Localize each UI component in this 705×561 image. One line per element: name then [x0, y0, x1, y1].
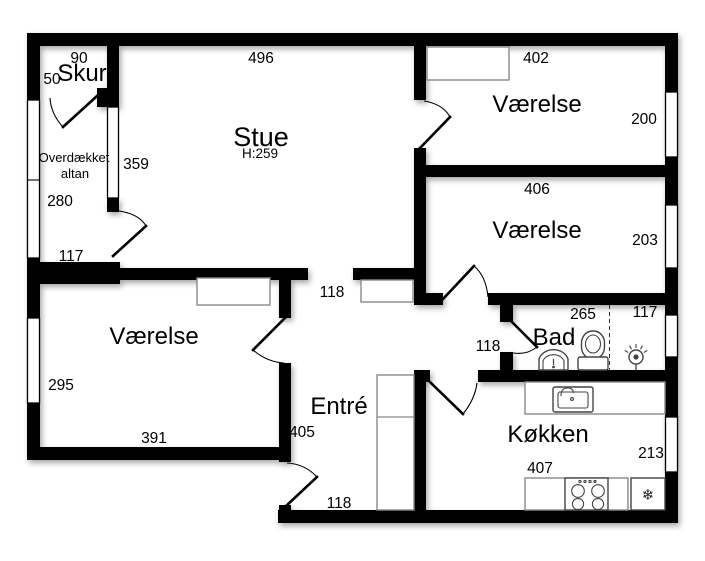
room-label-bad: Bad — [533, 324, 576, 351]
dim-skur-width: 90 — [70, 50, 88, 67]
window-bad — [666, 315, 678, 357]
kitchen-sink-icon — [553, 387, 593, 412]
kitchen-counter-top — [525, 382, 665, 414]
fridge-snowflake-icon: ❄ — [642, 486, 655, 504]
room-label-vaerelse-e: Værelse — [492, 217, 581, 244]
dim-bad-width: 265 — [570, 306, 596, 323]
room-label-entre: Entré — [310, 393, 367, 420]
window-vaerelse-ne — [666, 92, 678, 157]
dim-altan-width: 117 — [59, 248, 84, 265]
room-label-altan-line2: altan — [61, 166, 89, 181]
wardrobe-vaerelse-sw — [197, 278, 270, 305]
dim-entre-hall-width: 118 — [327, 495, 352, 512]
room-label-vaerelse-ne: Værelse — [492, 91, 581, 118]
room-label-vaerelse-sw: Værelse — [109, 323, 198, 350]
room-label-koekken: Køkken — [507, 421, 588, 448]
dim-koekken-width: 407 — [527, 460, 553, 477]
dim-vaerelse-sw-depth: 295 — [48, 377, 74, 394]
room-label-altan-line1: Overdækket — [39, 150, 110, 165]
fridge-icon: ❄ — [631, 478, 665, 510]
closet-entre — [377, 375, 414, 510]
floor-plan: ❄ Skur — [0, 0, 705, 561]
dim-koekken-depth: 213 — [638, 445, 664, 462]
dim-hall-upper-width: 118 — [320, 284, 345, 301]
window-altan-west — [28, 100, 40, 258]
toilet-icon — [578, 331, 608, 370]
dim-vaerelse-e-width: 406 — [524, 181, 550, 198]
dim-skur-depth: 50 — [43, 71, 61, 88]
stue-ceiling-height: H:259 — [242, 146, 278, 161]
stove-icon — [565, 478, 608, 510]
dim-vaerelse-ne-width: 402 — [523, 50, 549, 67]
window-vaerelse-sw — [28, 318, 40, 403]
closet-hall — [361, 280, 413, 302]
dim-bad-shower-width: 117 — [633, 304, 658, 321]
dim-hall-bad-width: 118 — [476, 338, 501, 355]
floor-plan-page: ❄ Skur — [0, 0, 705, 561]
wardrobe-vaerelse-ne — [427, 47, 509, 80]
window-vaerelse-e — [666, 205, 678, 268]
dim-vaerelse-sw-width: 391 — [141, 430, 167, 447]
dim-vaerelse-ne-depth: 200 — [631, 111, 657, 128]
dim-vaerelse-e-depth: 203 — [632, 232, 658, 249]
dim-entre-length: 405 — [289, 424, 315, 441]
dim-stue-width: 496 — [248, 50, 274, 67]
window-koekken — [666, 417, 678, 472]
bathroom-sink-icon — [539, 350, 568, 370]
dim-altan-depth: 280 — [47, 193, 73, 210]
dim-stue-depth: 359 — [123, 156, 149, 173]
